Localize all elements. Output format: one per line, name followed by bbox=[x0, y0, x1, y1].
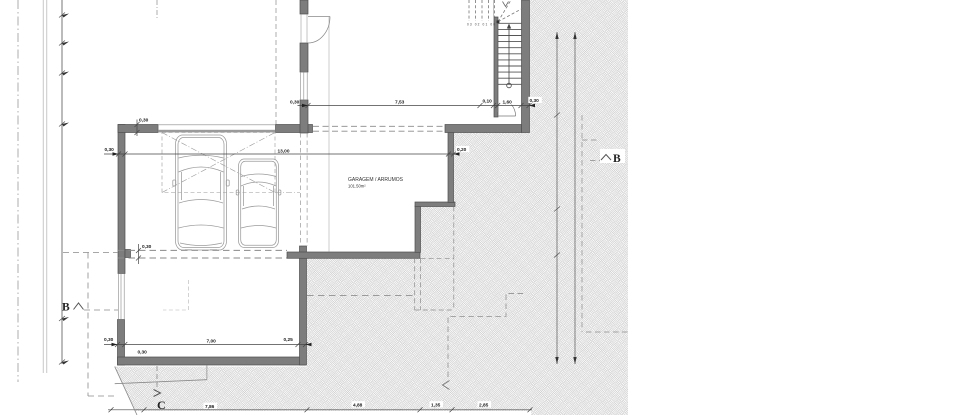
svg-text:B: B bbox=[613, 153, 621, 165]
svg-text:0,20: 0,20 bbox=[457, 147, 467, 153]
svg-text:101.50m²: 101.50m² bbox=[348, 184, 366, 189]
svg-text:0,30: 0,30 bbox=[142, 244, 152, 250]
svg-text:13,00: 13,00 bbox=[278, 149, 290, 155]
svg-text:7,00: 7,00 bbox=[207, 339, 217, 345]
svg-text:7,86: 7,86 bbox=[205, 404, 215, 410]
svg-text:1,35: 1,35 bbox=[431, 403, 441, 409]
svg-text:B: B bbox=[62, 302, 70, 314]
svg-text:0,30: 0,30 bbox=[290, 100, 300, 106]
svg-text:1,60: 1,60 bbox=[503, 100, 513, 106]
svg-text:7,53: 7,53 bbox=[395, 100, 405, 106]
svg-text:GARAGEM / ARRUMOS: GARAGEM / ARRUMOS bbox=[348, 177, 404, 183]
svg-text:0,30: 0,30 bbox=[530, 98, 540, 104]
svg-text:0,10: 0,10 bbox=[483, 99, 493, 105]
svg-text:0,30: 0,30 bbox=[138, 350, 148, 356]
svg-text:2,85: 2,85 bbox=[479, 403, 489, 409]
svg-text:0,25: 0,25 bbox=[284, 337, 294, 343]
svg-text:0,30: 0,30 bbox=[104, 337, 114, 343]
svg-text:0,30: 0,30 bbox=[139, 118, 149, 124]
svg-text:0,30: 0,30 bbox=[105, 147, 115, 153]
svg-text:4,88: 4,88 bbox=[353, 403, 363, 409]
svg-text:03 02 01 00: 03 02 01 00 bbox=[467, 23, 495, 27]
svg-text:C: C bbox=[157, 398, 166, 412]
